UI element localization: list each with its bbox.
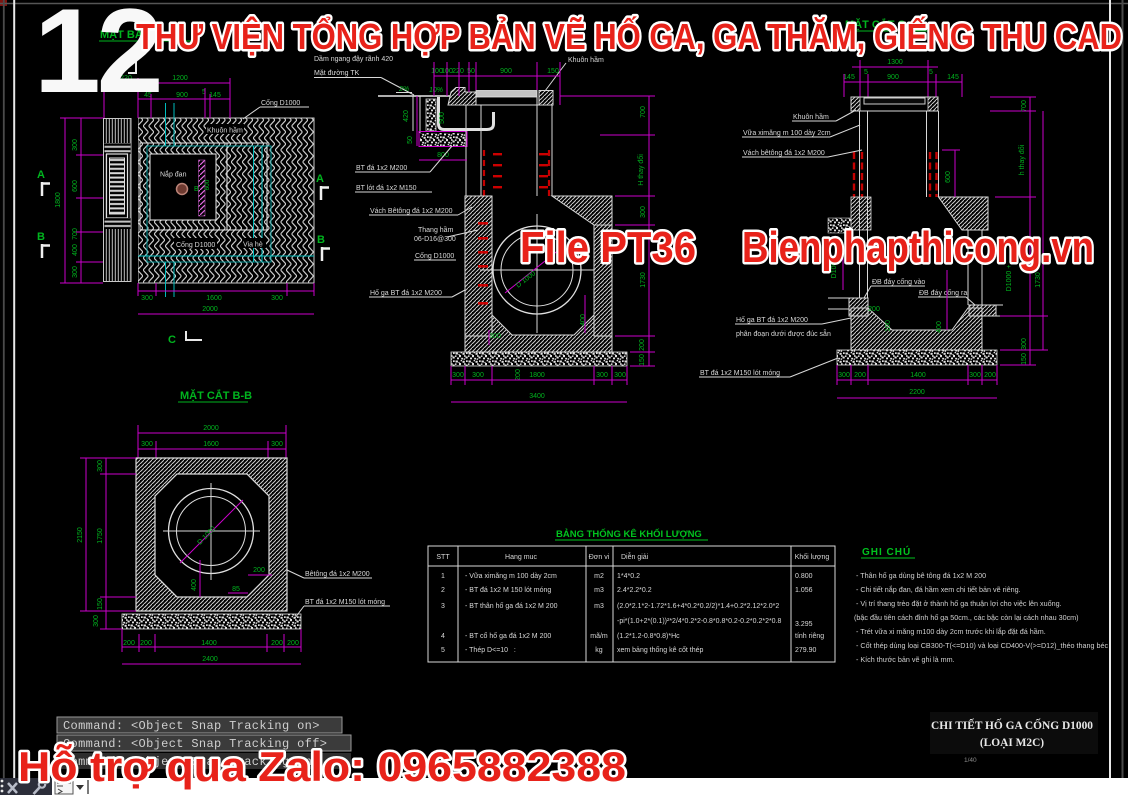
svg-text:MẶT CẮT B-B: MẶT CẮT B-B [180, 389, 252, 402]
svg-text:900: 900 [887, 74, 899, 81]
svg-text:Vách bêtông đá 1x2 M200: Vách bêtông đá 1x2 M200 [743, 150, 825, 157]
svg-text:STT: STT [436, 554, 450, 561]
svg-text:Bêtông đá 1x2 M200: Bêtông đá 1x2 M200 [305, 571, 370, 578]
svg-text:1400: 1400 [201, 640, 217, 647]
svg-text:(bậc đầu tiên cách đỉnh hố ga: (bậc đầu tiên cách đỉnh hố ga 50cm., các… [854, 613, 1079, 622]
svg-text:200: 200 [123, 640, 135, 647]
svg-text:600: 600 [72, 180, 79, 192]
svg-text:5: 5 [441, 647, 445, 654]
svg-text:Via hè: Via hè [243, 242, 263, 249]
svg-text:150: 150 [547, 68, 559, 75]
svg-text:tính riêng: tính riêng [795, 633, 824, 640]
svg-text:600: 600 [204, 179, 211, 190]
svg-text:Hố ga BT đá 1x2 M200: Hố ga BT đá 1x2 M200 [370, 288, 442, 297]
svg-text:300: 300 [489, 333, 501, 340]
svg-text:279.90: 279.90 [795, 647, 817, 654]
svg-text:200: 200 [515, 369, 522, 381]
svg-text:900: 900 [176, 92, 188, 99]
svg-text:(1.2*1.2-0.8*0.8)*Hc: (1.2*1.2-0.8*0.8)*Hc [617, 633, 680, 640]
svg-text:1750: 1750 [97, 528, 104, 544]
svg-text:150: 150 [1021, 353, 1028, 365]
svg-text:BT đá 1x2 M150 lót móng: BT đá 1x2 M150 lót móng [305, 599, 385, 606]
svg-text:A: A [37, 169, 45, 181]
svg-text:1400: 1400 [910, 372, 926, 379]
svg-text:5: 5 [929, 69, 933, 76]
svg-text:1800: 1800 [529, 372, 545, 379]
svg-text:85: 85 [232, 586, 240, 593]
svg-text:- Kích thước bản vẽ ghi là mm.: - Kích thước bản vẽ ghi là mm. [856, 655, 955, 664]
svg-text:1300: 1300 [887, 59, 903, 66]
svg-text:(2.0*2.1*2-1.72*1.6+4*0.2*0.2/: (2.0*2.1*2-1.72*1.6+4*0.2*0.2/2)*1.4+0.2… [617, 603, 779, 610]
svg-text:Khuôn hầm: Khuôn hầm [207, 126, 243, 135]
svg-text:Vữa ximăng m 100 dày 2cm: Vữa ximăng m 100 dày 2cm [743, 130, 831, 137]
svg-text:2200: 2200 [909, 389, 925, 396]
svg-text:150: 150 [97, 598, 104, 610]
svg-text:2000: 2000 [202, 306, 218, 313]
svg-text:300: 300 [838, 372, 850, 379]
svg-text:1730: 1730 [1035, 272, 1042, 288]
svg-text:2: 2 [441, 587, 445, 594]
svg-text:B: B [194, 186, 199, 193]
svg-text:BẢNG THỐNG KÊ KHỐI LƯỢNG: BẢNG THỐNG KÊ KHỐI LƯỢNG [556, 528, 702, 540]
svg-text:1*4*0.2: 1*4*0.2 [617, 573, 640, 580]
svg-text:2000: 2000 [203, 425, 219, 432]
svg-text:B: B [317, 234, 325, 246]
svg-text:BT lót đá 1x2 M150: BT lót đá 1x2 M150 [356, 185, 417, 192]
svg-text:400: 400 [72, 244, 79, 256]
svg-text:145: 145 [209, 92, 221, 99]
svg-text:2%: 2% [398, 86, 409, 93]
svg-text:1: 1 [441, 573, 445, 580]
svg-text:0.800: 0.800 [795, 573, 813, 580]
svg-text:300: 300 [969, 372, 981, 379]
svg-text:C: C [168, 334, 176, 346]
svg-text:(LOẠI M2C): (LOẠI M2C) [980, 737, 1044, 749]
svg-text:400: 400 [936, 321, 943, 333]
svg-text:THƯ VIỆN TỔNG HỢP BẢN VẼ HỐ GA: THƯ VIỆN TỔNG HỢP BẢN VẼ HỐ GA, GA THĂM,… [136, 14, 1122, 57]
svg-text:1.056: 1.056 [795, 587, 813, 594]
svg-text:- Vữa ximăng m 100 dày 2cm: - Vữa ximăng m 100 dày 2cm [465, 573, 557, 580]
svg-text:Hố ga BT đá 1x2 M200: Hố ga BT đá 1x2 M200 [736, 315, 808, 324]
svg-text:H thay đổi: H thay đổi [637, 154, 645, 186]
svg-text:phân đoạn dưới được đúc sẵn: phân đoạn dưới được đúc sẵn [736, 329, 831, 338]
svg-text:Command: <Object Snap Trackin: Command: <Object Snap Tracking on> [63, 719, 320, 733]
svg-text:1/40: 1/40 [964, 757, 977, 764]
svg-text:ĐB đáy cống ra: ĐB đáy cống ra [919, 288, 967, 297]
svg-text:m2: m2 [594, 573, 604, 580]
svg-text:220: 220 [452, 68, 464, 75]
svg-text:Diễn giải: Diễn giải [621, 552, 649, 561]
svg-text:300: 300 [271, 295, 283, 302]
svg-text:- Vị trí thang trèo đặt ở thàn: - Vị trí thang trèo đặt ở thành hố ga th… [856, 599, 1062, 608]
svg-text:300: 300 [452, 372, 464, 379]
svg-text:BT đá 1x2 M150 lót móng: BT đá 1x2 M150 lót móng [700, 370, 780, 377]
svg-text:300: 300 [72, 139, 79, 151]
svg-text:- Cốt thép dùng loại CB300-T(<: - Cốt thép dùng loại CB300-T(<=D10) và l… [856, 641, 1109, 650]
svg-text:200: 200 [271, 640, 283, 647]
svg-text:1800: 1800 [55, 192, 62, 208]
svg-text:1730: 1730 [640, 272, 647, 288]
svg-text:2150: 2150 [77, 527, 84, 543]
svg-text:- BT cổ hố ga đá 1x2 M 200: - BT cổ hố ga đá 1x2 M 200 [465, 631, 551, 640]
svg-text:700: 700 [72, 228, 79, 240]
svg-text:5: 5 [864, 69, 868, 76]
svg-text:400: 400 [191, 579, 198, 591]
svg-text:300: 300 [614, 372, 626, 379]
svg-text:400: 400 [580, 314, 587, 326]
svg-text:2.4*2.2*0.2: 2.4*2.2*0.2 [617, 587, 652, 594]
svg-text:Vách Bêtông đá 1x2 M200: Vách Bêtông đá 1x2 M200 [370, 208, 453, 215]
svg-text:200: 200 [854, 372, 866, 379]
svg-text:m3: m3 [594, 603, 604, 610]
svg-text:145: 145 [843, 74, 855, 81]
svg-text:100: 100 [885, 320, 892, 332]
svg-text:GHI CHÚ: GHI CHÚ [862, 545, 911, 558]
svg-text:Mặt đường TK: Mặt đường TK [314, 70, 360, 77]
svg-text:- Thân hố ga dùng bê tông đá 1: - Thân hố ga dùng bê tông đá 1x2 M 200 [856, 571, 986, 580]
svg-text:150: 150 [639, 354, 646, 366]
svg-text:m3: m3 [594, 587, 604, 594]
svg-text:3.295: 3.295 [795, 621, 813, 628]
svg-text:1600: 1600 [206, 295, 222, 302]
svg-text:06-D16@300: 06-D16@300 [414, 236, 456, 243]
svg-text:- BT thân hố ga đá 1x2 M 200: - BT thân hố ga đá 1x2 M 200 [465, 601, 558, 610]
svg-text:CHI TIẾT HỐ GA CỐNG D1000: CHI TIẾT HỐ GA CỐNG D1000 [931, 719, 1093, 732]
svg-text:300: 300 [141, 441, 153, 448]
svg-text:Khuôn hầm: Khuôn hầm [793, 112, 829, 121]
svg-text:900: 900 [500, 68, 512, 75]
svg-text:B: B [37, 231, 45, 243]
svg-text:1600: 1600 [203, 441, 219, 448]
svg-text:200: 200 [868, 306, 880, 313]
svg-text:1200: 1200 [172, 75, 188, 82]
svg-text:Cống D1000: Cống D1000 [415, 251, 454, 260]
svg-text:Cống D1000: Cống D1000 [261, 98, 300, 107]
svg-text:-pi*(1.0+2*(0.1))²*2/4*0.2*2-0: -pi*(1.0+2*(0.1))²*2/4*0.2*2-0.8*0.8*0.2… [617, 618, 782, 625]
svg-text:A: A [316, 173, 324, 185]
svg-text:300: 300 [271, 441, 283, 448]
svg-text:10%: 10% [429, 87, 443, 94]
svg-text:500: 500 [439, 112, 446, 124]
svg-text:Bienphapthicong.vn: Bienphapthicong.vn [742, 223, 1094, 272]
svg-text:50: 50 [407, 136, 414, 144]
svg-text:420: 420 [403, 110, 410, 122]
svg-text:Nắp đan: Nắp đan [160, 170, 187, 179]
svg-text:300: 300 [640, 206, 647, 218]
svg-text:200: 200 [639, 339, 646, 351]
svg-text:200: 200 [984, 372, 996, 379]
svg-text:- Trét vữa xi măng m100 dày 2c: - Trét vữa xi măng m100 dày 2cm trước kh… [856, 627, 1046, 636]
svg-text:Cống D1000: Cống D1000 [176, 240, 215, 249]
svg-text:200: 200 [140, 640, 152, 647]
svg-text:200: 200 [287, 640, 299, 647]
svg-text:Khối lượng: Khối lượng [795, 552, 830, 561]
svg-text:Thang hầm: Thang hầm [418, 225, 454, 234]
svg-text:3400: 3400 [529, 393, 545, 400]
svg-text:300: 300 [97, 460, 104, 472]
svg-text:xem bảng thống kê cốt thép: xem bảng thống kê cốt thép [617, 645, 703, 654]
svg-text:300: 300 [1021, 338, 1028, 350]
svg-text:- Thép D<=10 :: - Thép D<=10 : [465, 647, 516, 654]
svg-text:50: 50 [467, 68, 475, 75]
svg-text:Đơn vi: Đơn vi [589, 554, 610, 561]
svg-text:h thay đổi: h thay đổi [1018, 144, 1026, 175]
svg-text:3: 3 [441, 603, 445, 610]
svg-text:4: 4 [441, 633, 445, 640]
svg-text:300: 300 [72, 266, 79, 278]
svg-text:700: 700 [1021, 100, 1028, 112]
svg-text:700: 700 [640, 106, 647, 118]
svg-text:BT đá 1x2 M200: BT đá 1x2 M200 [356, 165, 407, 172]
svg-text:300: 300 [141, 295, 153, 302]
svg-text:ĐB đáy cống vào: ĐB đáy cống vào [872, 277, 925, 286]
svg-text:145: 145 [947, 74, 959, 81]
svg-text:200: 200 [253, 567, 265, 574]
svg-text:- Chi tiết nắp đan, đá hầm xem: - Chi tiết nắp đan, đá hầm xem chi tiết … [856, 585, 1021, 594]
svg-text:mã/m: mã/m [590, 633, 608, 640]
svg-text:Hỗ trợ qua Zalo: 0965882388: Hỗ trợ qua Zalo: 0965882388 [18, 742, 626, 790]
svg-text:kg: kg [595, 647, 603, 654]
svg-text:300: 300 [596, 372, 608, 379]
svg-text:File PT36: File PT36 [520, 223, 696, 272]
svg-text:300: 300 [93, 615, 100, 627]
svg-text:2400: 2400 [202, 656, 218, 663]
svg-text:- BT đá 1x2 M 150 lót móng: - BT đá 1x2 M 150 lót móng [465, 587, 551, 594]
svg-text:600: 600 [945, 171, 952, 183]
svg-text:300: 300 [472, 372, 484, 379]
svg-text:Hang muc: Hang muc [505, 554, 537, 561]
svg-text:800: 800 [437, 152, 449, 159]
